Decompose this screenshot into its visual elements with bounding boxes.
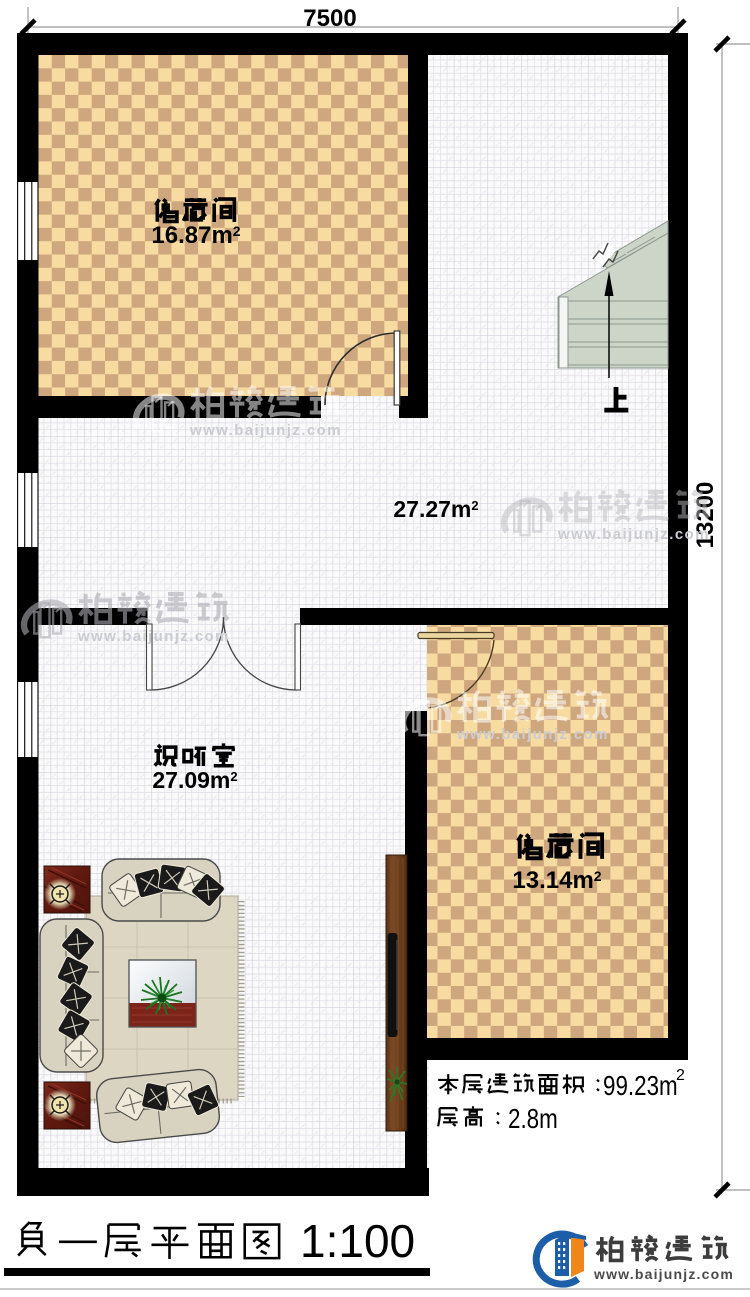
svg-text:99.23m: 99.23m <box>603 1071 678 1102</box>
svg-text:7500: 7500 <box>303 5 356 32</box>
svg-text:27.09m2: 27.09m2 <box>152 767 237 793</box>
svg-text:2: 2 <box>676 1067 685 1084</box>
svg-text:13.14m2: 13.14m2 <box>512 867 601 894</box>
svg-text:16.87m2: 16.87m2 <box>151 222 240 249</box>
svg-text:2.8m: 2.8m <box>508 1104 558 1135</box>
svg-text:1:100: 1:100 <box>300 1215 415 1267</box>
svg-text:www.baijunjz.com: www.baijunjz.com <box>593 1266 734 1282</box>
svg-text:27.27m2: 27.27m2 <box>393 496 478 522</box>
